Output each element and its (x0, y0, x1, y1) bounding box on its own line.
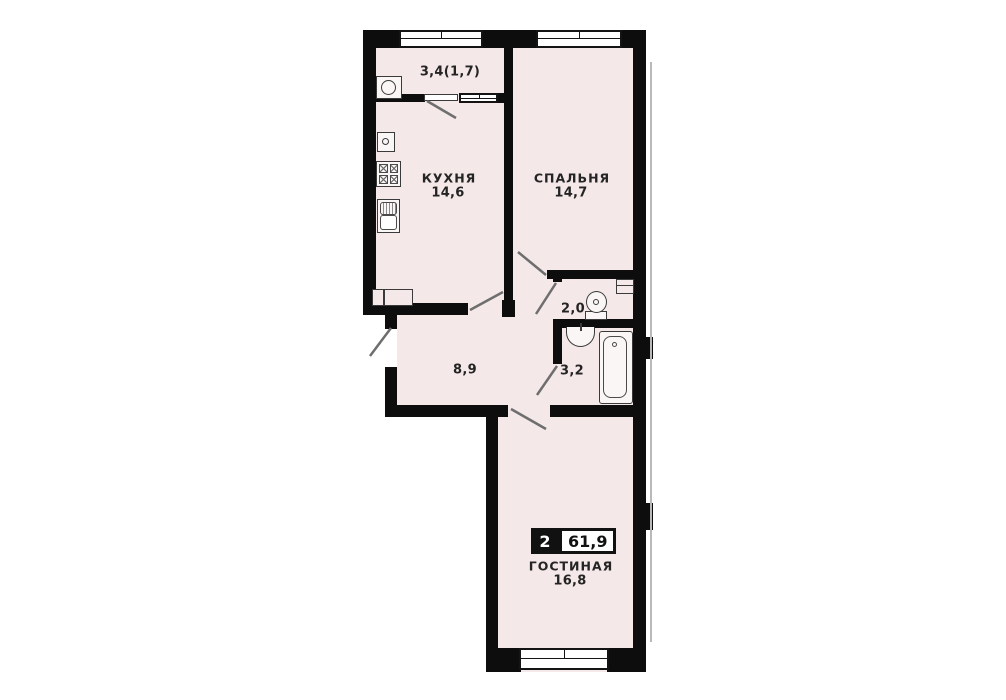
wall-kitchen-bedroom (504, 44, 513, 302)
water-heater-dial (382, 138, 389, 145)
bathroom-area-label: 3,2 (560, 364, 584, 379)
stove-burners (379, 164, 398, 184)
basin-tap (580, 323, 582, 331)
floor-plan: 3,4(1,7) КУХНЯ 14,6 СПАЛЬНЯ 14,7 2,0 3,2… (0, 0, 1006, 700)
badge-room-count: 2 (531, 528, 559, 554)
wall-entrance-top-stub (385, 315, 397, 329)
wall-bottom-left-segment (486, 648, 521, 672)
wall-living-left (486, 405, 498, 660)
kitchen-name-label: КУХНЯ (422, 171, 477, 186)
wall-sanitary-left-top (553, 270, 562, 282)
apartment-badge: 2 61,9 (531, 528, 616, 554)
balcony-area-label: 3,4(1,7) (420, 65, 480, 80)
wall-right (633, 30, 646, 672)
living-name-label: ГОСТИНАЯ (529, 559, 614, 574)
duct-shaft-icon (616, 279, 634, 294)
bedroom-name-label: СПАЛЬНЯ (534, 171, 610, 186)
hallway-area-label: 8,9 (453, 363, 477, 378)
room-fill-hallway (385, 303, 562, 417)
bathtub-icon (599, 331, 633, 404)
balcony-block-window (459, 93, 498, 103)
wall-living-top-right (550, 405, 646, 417)
badge-total-area: 61,9 (559, 528, 616, 554)
stove-icon (376, 161, 401, 187)
sink-bowl (380, 215, 397, 230)
toilet-bowl (586, 291, 607, 313)
living-area-label: 16,8 (553, 574, 586, 589)
living-window (519, 648, 609, 670)
balcony-window (399, 30, 483, 48)
kitchen-area-label: 14,6 (431, 186, 464, 201)
facade-line (650, 62, 652, 642)
toilet-area-label: 2,0 (561, 302, 585, 317)
wall-kitchen-bedroom-end (502, 300, 515, 317)
washing-machine-icon (376, 76, 402, 99)
wall-bottom-right-segment (607, 648, 646, 672)
washing-machine-drum (381, 80, 396, 95)
bedroom-window (536, 30, 622, 48)
sink-drainer (380, 202, 397, 215)
duct-divider (617, 285, 633, 286)
wardrobe-icon (372, 289, 413, 306)
wall-left (363, 30, 376, 315)
bedroom-area-label: 14,7 (554, 186, 587, 201)
water-heater-icon (377, 132, 395, 152)
bathtub-drain (612, 342, 617, 347)
toilet-drain (593, 299, 599, 305)
wardrobe-divider (383, 290, 385, 305)
kitchen-sink-icon (377, 199, 400, 233)
balcony-door-panel (424, 94, 458, 101)
entrance-opening (385, 329, 397, 367)
